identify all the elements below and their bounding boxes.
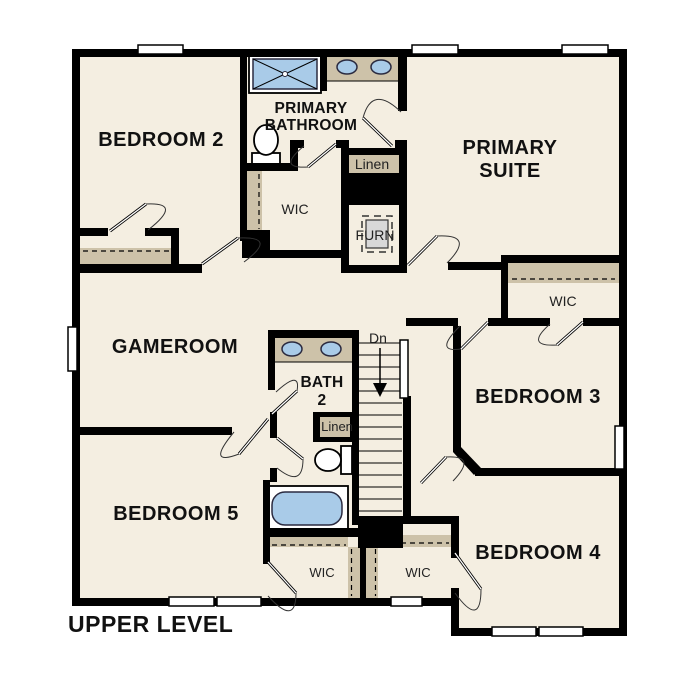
room-label-primary-suite-2: SUITE — [479, 160, 540, 182]
shower-drain-icon — [283, 72, 288, 77]
window — [68, 327, 77, 371]
sink-icon — [371, 60, 391, 74]
room-label-primary-suite-1: PRIMARY — [463, 137, 558, 159]
window — [539, 627, 583, 636]
closet-label-wic-bedroom4: WIC — [405, 565, 430, 580]
window — [391, 597, 422, 606]
room-label-gameroom: GAMEROOM — [112, 336, 238, 358]
window — [615, 426, 624, 469]
window — [138, 45, 183, 54]
closet-label-wic-bedroom5: WIC — [309, 565, 334, 580]
shower — [249, 55, 321, 93]
window — [217, 597, 261, 606]
room-label-primary-bathroom-1: PRIMARY — [274, 100, 347, 117]
closet-label-linen-bath2: Linen — [321, 419, 353, 434]
closet-label-wic-primary: WIC — [281, 201, 308, 217]
primary-wic-shelf — [247, 171, 262, 233]
sink-icon — [282, 342, 302, 356]
room-label-bedroom2: BEDROOM 2 — [98, 129, 224, 151]
window — [492, 627, 536, 636]
plan-title: UPPER LEVEL — [68, 611, 233, 637]
room-label-bath2-1: BATH — [300, 374, 343, 391]
bath2-vanity — [275, 336, 352, 362]
closet-label-wic-bedroom3: WIC — [549, 293, 576, 309]
window — [562, 45, 608, 54]
stair-railing — [400, 340, 408, 398]
bathtub — [266, 486, 348, 531]
bath2-toilet — [315, 446, 352, 474]
wic4-side-shelf — [366, 547, 378, 598]
window — [412, 45, 458, 54]
label-furnace: FURN — [356, 227, 395, 243]
sink-icon — [321, 342, 341, 356]
room-label-bedroom4: BEDROOM 4 — [475, 542, 601, 564]
room-label-bedroom5: BEDROOM 5 — [113, 503, 239, 525]
room-label-primary-bathroom-2: BATHROOM — [265, 117, 358, 134]
floor-plan-page: BEDROOM 2 PRIMARY BATHROOM PRIMARY SUITE… — [0, 0, 687, 687]
floor-plan: BEDROOM 2 PRIMARY BATHROOM PRIMARY SUITE… — [0, 0, 687, 687]
bedroom3-wic-shelf — [508, 263, 619, 283]
closet-label-linen-primary: Linen — [355, 156, 389, 172]
primary-vanity — [327, 53, 398, 81]
room-label-bath2-2: 2 — [318, 392, 327, 409]
window — [169, 597, 214, 606]
label-stairs-down: Dn — [369, 330, 387, 346]
wic5-side-shelf — [348, 547, 360, 598]
sink-icon — [337, 60, 357, 74]
room-label-bedroom3: BEDROOM 3 — [475, 386, 601, 408]
